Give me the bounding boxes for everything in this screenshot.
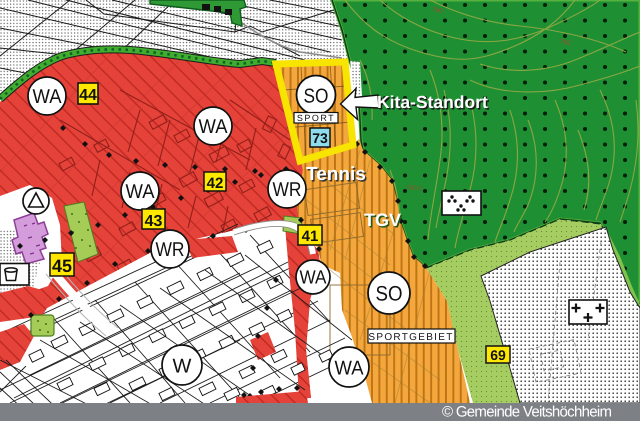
- svg-text:SPORTGEBIET: SPORTGEBIET: [368, 332, 453, 343]
- svg-text:73: 73: [312, 130, 328, 146]
- svg-text:43: 43: [145, 213, 163, 230]
- svg-text:WR: WR: [156, 239, 185, 261]
- svg-text:69: 69: [490, 347, 506, 363]
- svg-text:Tennis: Tennis: [306, 164, 366, 185]
- svg-text:45: 45: [52, 256, 72, 276]
- svg-text:WR: WR: [273, 179, 302, 201]
- svg-text:WA: WA: [126, 181, 156, 203]
- svg-text:© Gemeinde Veitshöchheim: © Gemeinde Veitshöchheim: [442, 404, 612, 421]
- svg-text:44: 44: [79, 87, 97, 104]
- svg-text:41: 41: [302, 228, 319, 245]
- svg-text:WA: WA: [199, 116, 229, 138]
- svg-text:TGV: TGV: [364, 210, 401, 230]
- svg-text:W: W: [173, 356, 192, 378]
- svg-text:SO: SO: [304, 86, 329, 108]
- svg-text:WA: WA: [300, 268, 327, 289]
- svg-text:WA: WA: [335, 358, 365, 380]
- svg-text:SO: SO: [376, 283, 403, 306]
- svg-text:Kita-Standort: Kita-Standort: [377, 92, 488, 112]
- svg-text:WA: WA: [33, 86, 63, 108]
- svg-text:42: 42: [207, 175, 224, 192]
- svg-text:760,y: 760,y: [406, 184, 423, 192]
- svg-text:SPORT: SPORT: [297, 113, 335, 123]
